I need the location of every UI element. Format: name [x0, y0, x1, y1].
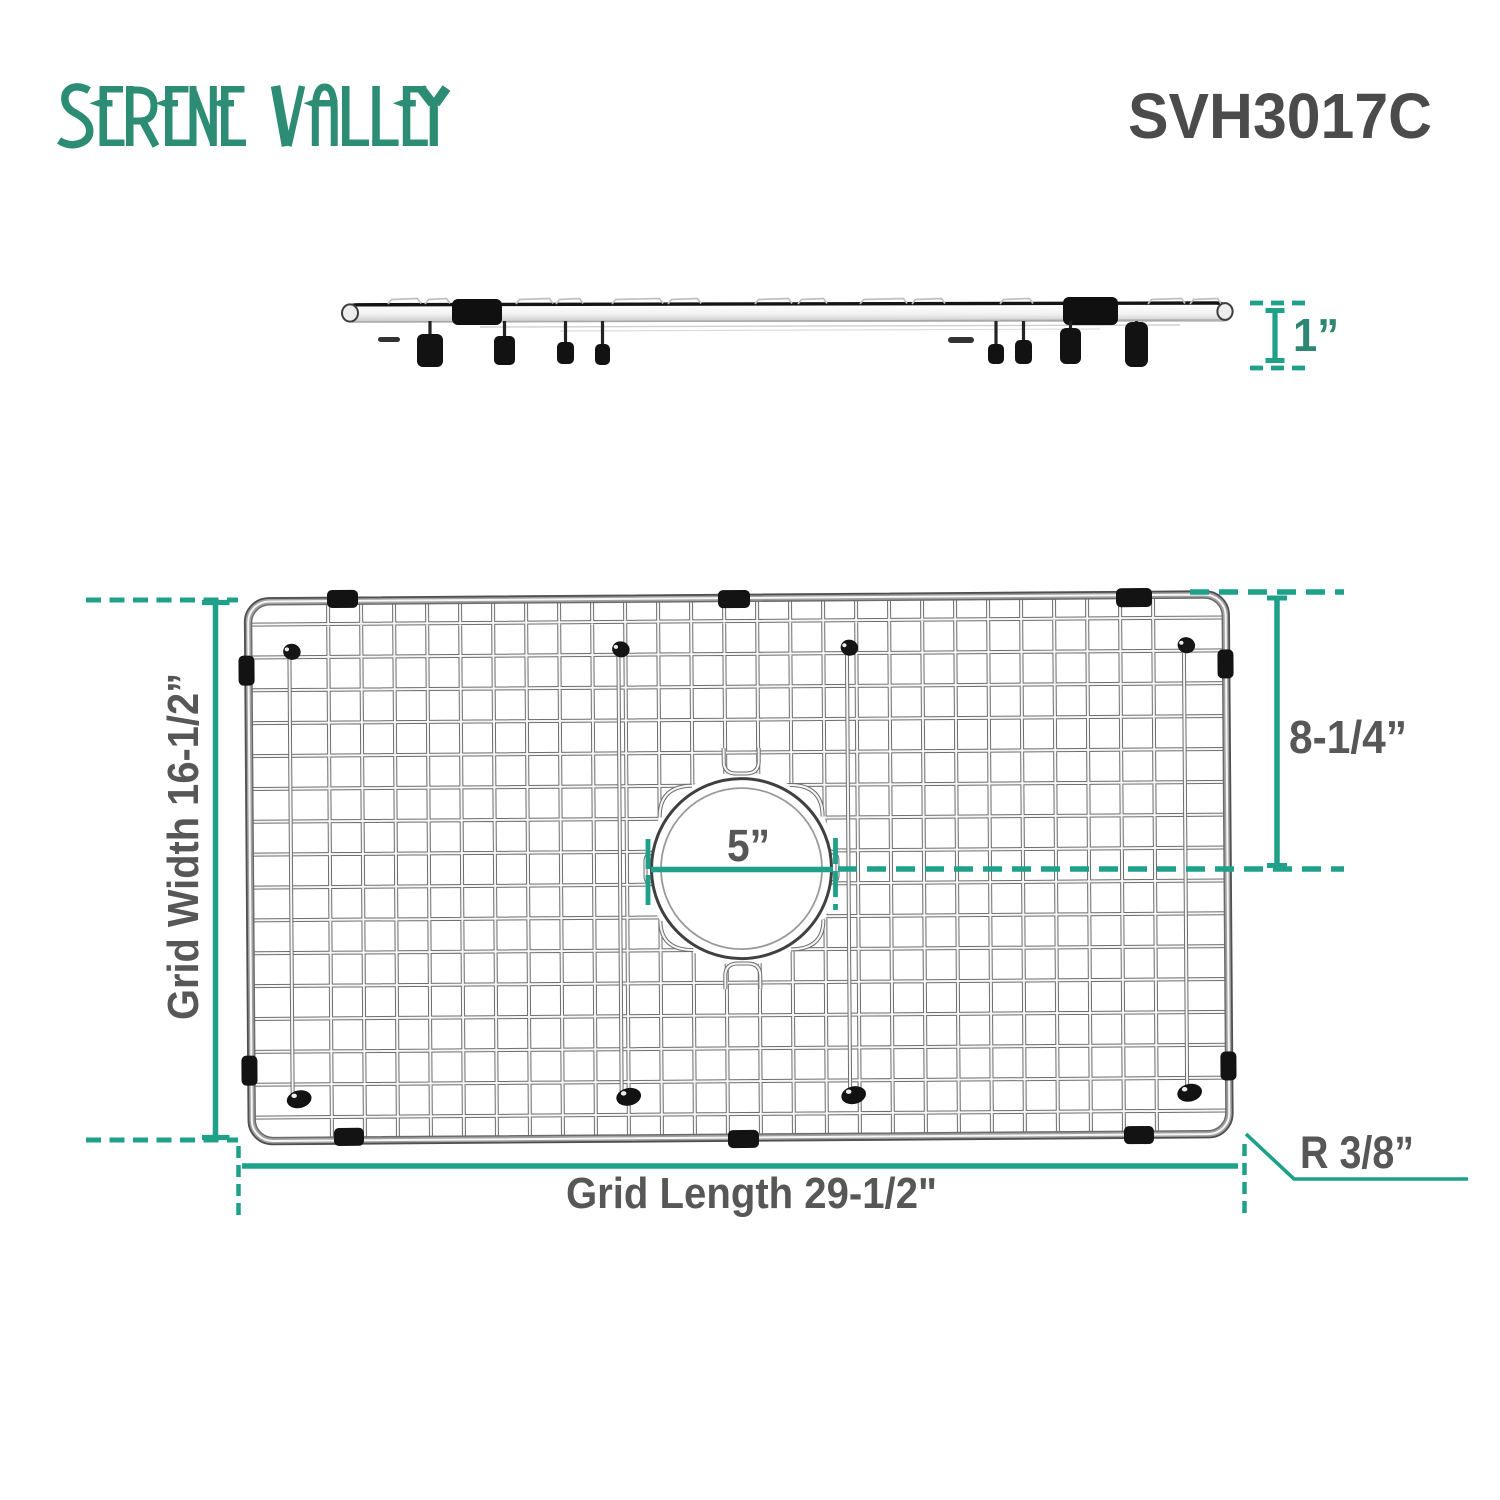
- svg-text:1”: 1”: [1293, 309, 1339, 361]
- svg-text:SVH3017C: SVH3017C: [1128, 80, 1432, 152]
- svg-text:R 3/8”: R 3/8”: [1300, 1127, 1414, 1178]
- svg-text:Grid Length 29-1/2": Grid Length 29-1/2": [566, 1169, 937, 1218]
- svg-text:8-1/4”: 8-1/4”: [1289, 711, 1407, 763]
- svg-text:Grid Width 16-1/2”: Grid Width 16-1/2”: [159, 673, 208, 1020]
- svg-text:5”: 5”: [727, 820, 770, 871]
